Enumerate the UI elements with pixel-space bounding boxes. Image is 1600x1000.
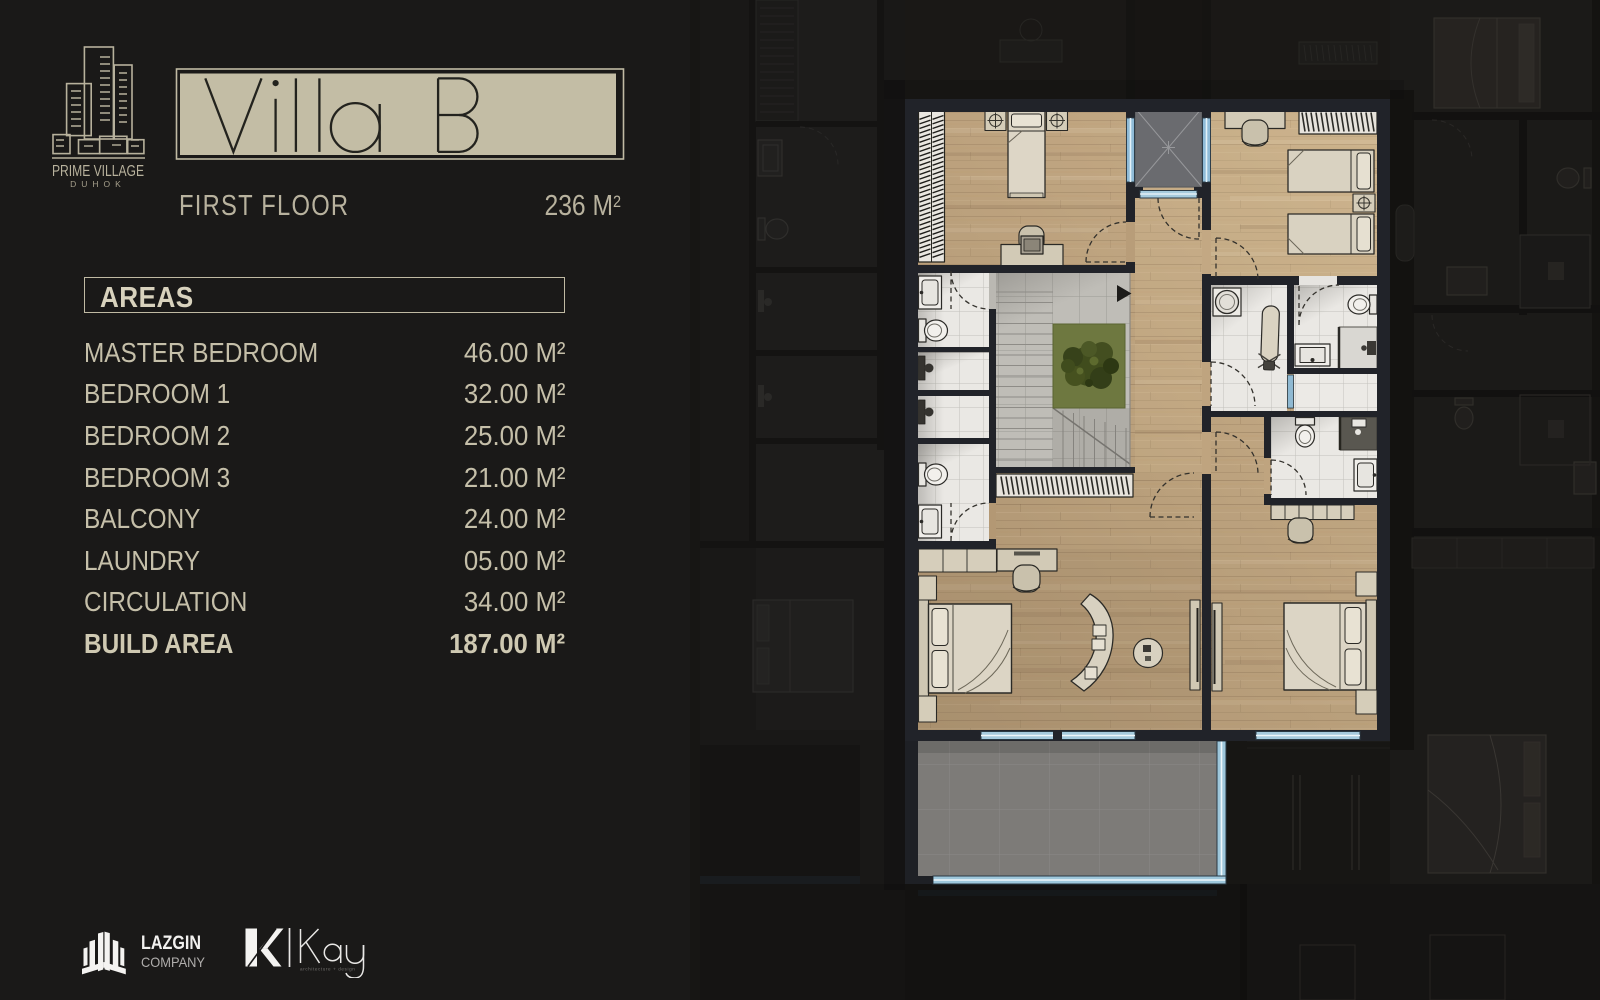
svg-text:COMPANY: COMPANY [141,954,206,970]
svg-text:architecture + design: architecture + design [300,967,355,972]
svg-text:PRIME VILLAGE: PRIME VILLAGE [52,163,144,180]
svg-text:LAZGIN: LAZGIN [141,933,201,954]
svg-text:DUHOK: DUHOK [70,179,126,189]
